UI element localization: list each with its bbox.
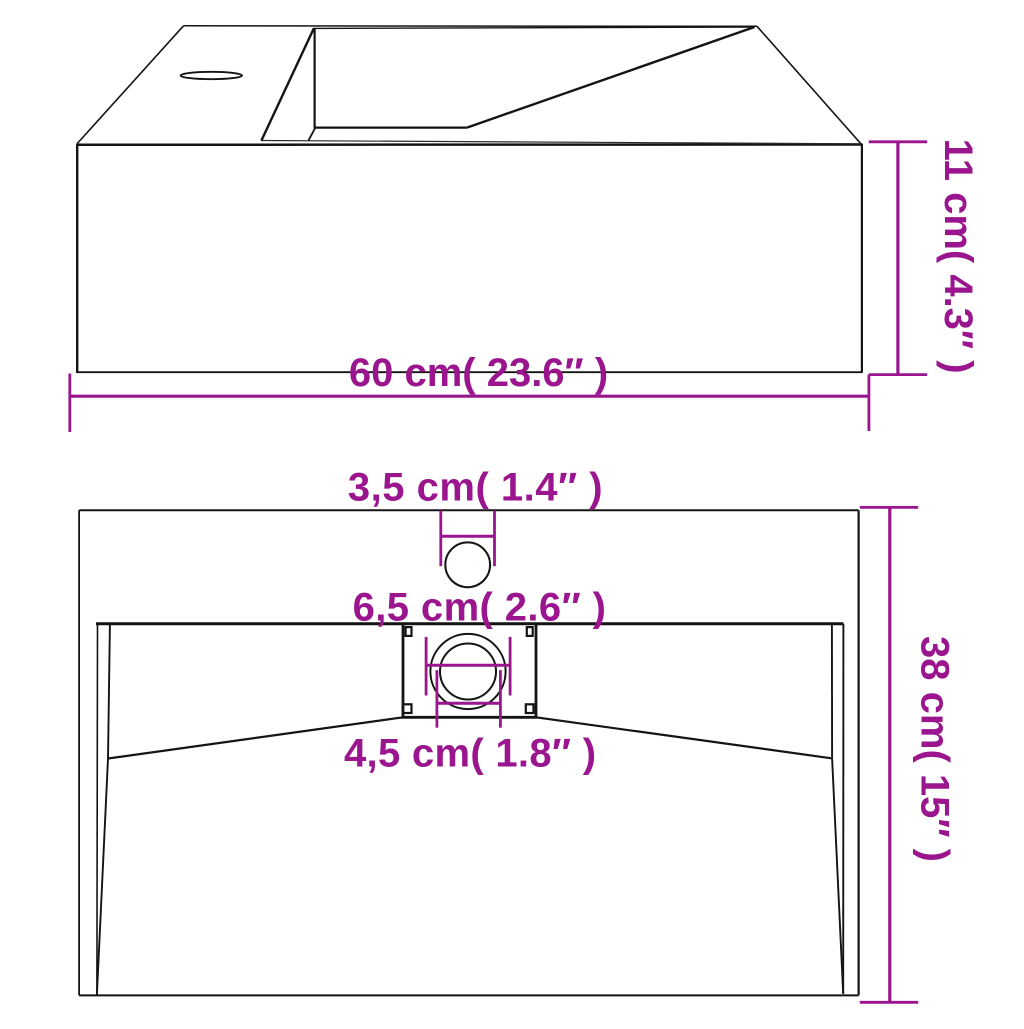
svg-text:3,5 cm( 1.4″ ): 3,5 cm( 1.4″ ) (348, 466, 603, 510)
svg-text:60 cm( 23.6″ ): 60 cm( 23.6″ ) (349, 351, 608, 395)
svg-text:11 cm( 4.3″ ): 11 cm( 4.3″ ) (936, 139, 980, 374)
svg-text:4,5 cm( 1.8″ ): 4,5 cm( 1.8″ ) (344, 731, 596, 775)
svg-text:38 cm( 15″ ): 38 cm( 15″ ) (913, 636, 957, 862)
svg-text:6,5 cm( 2.6″ ): 6,5 cm( 2.6″ ) (353, 585, 607, 629)
